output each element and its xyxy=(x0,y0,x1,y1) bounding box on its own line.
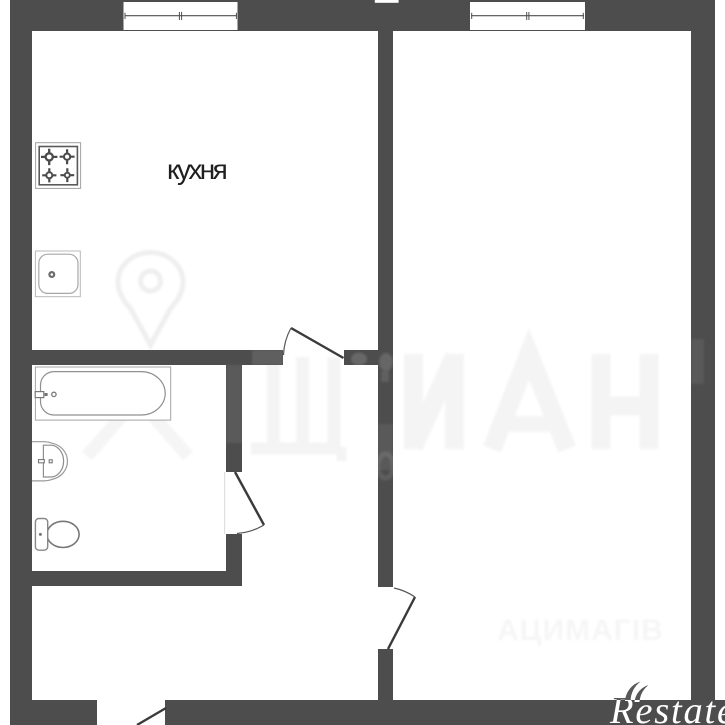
svg-text:АЦИМАГІВ: АЦИМАГІВ xyxy=(497,614,664,647)
svg-text:кухня: кухня xyxy=(167,154,227,185)
